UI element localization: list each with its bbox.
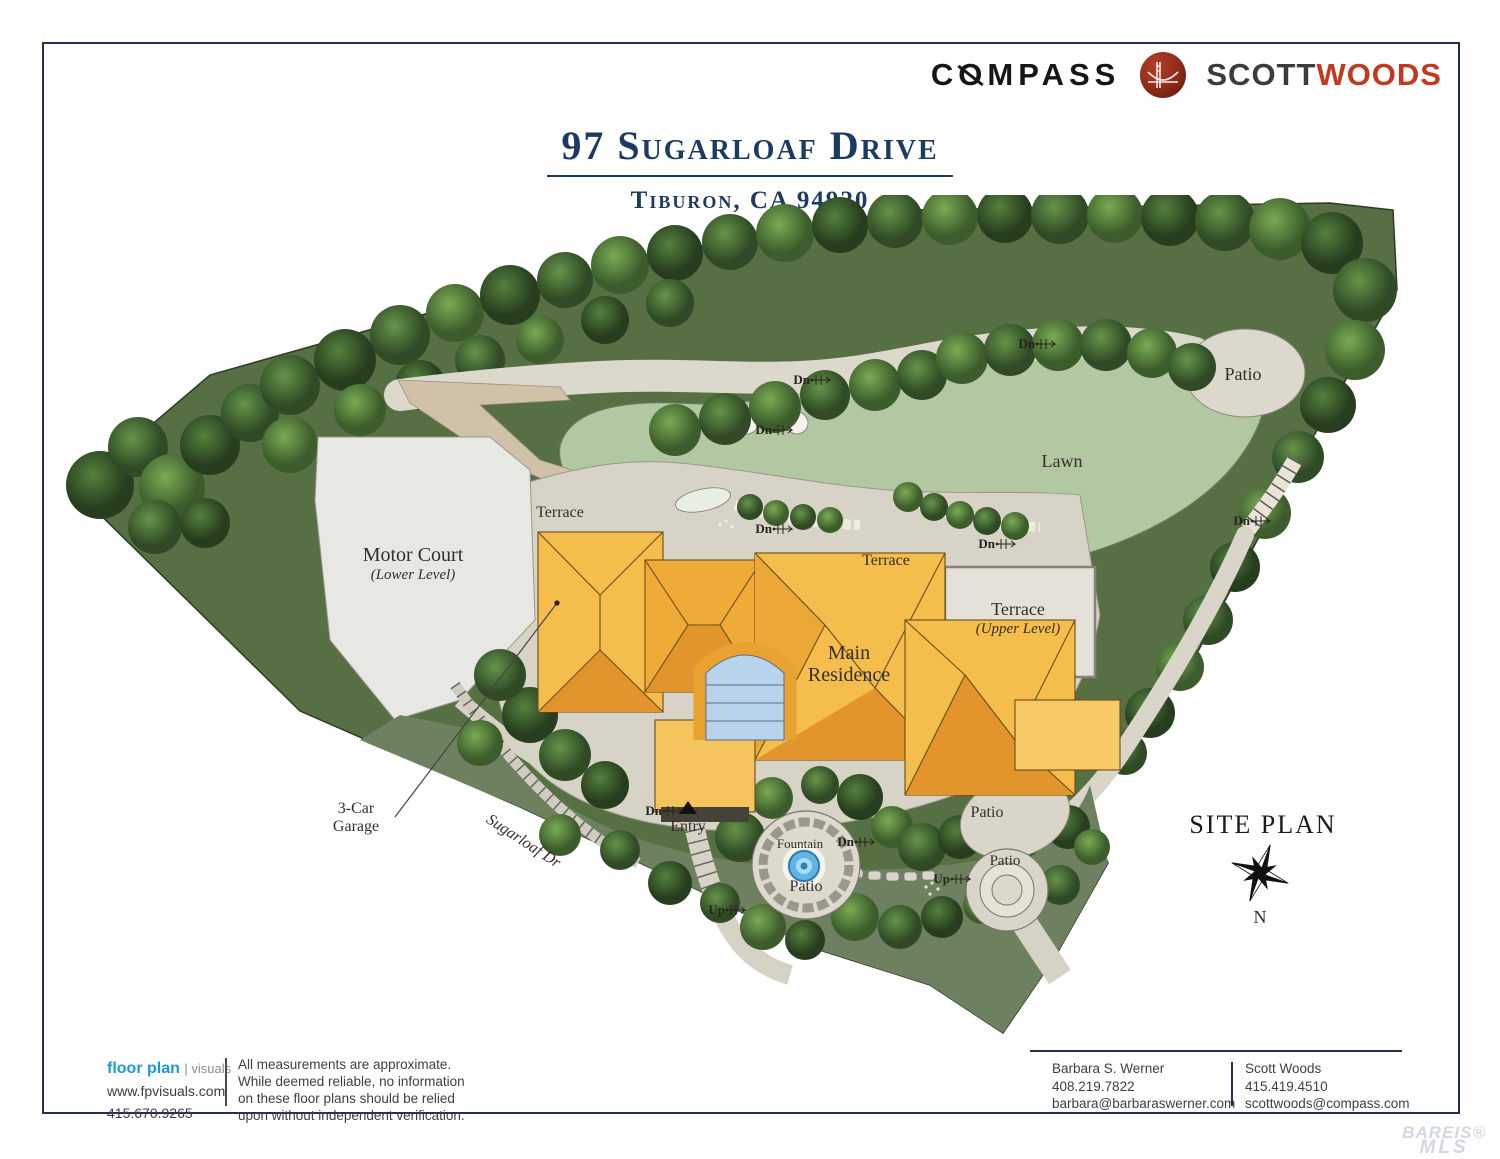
label-patio-lower: Patio — [990, 853, 1021, 869]
vendor-phone: 415.670.9265 — [107, 1102, 231, 1124]
fountain-patio — [752, 811, 860, 919]
watermark-reg: ® — [1472, 1123, 1486, 1142]
vendor-name-bold: floor plan — [107, 1060, 180, 1077]
label-motor-court: Motor Court — [363, 544, 464, 566]
label-terrace-left: Terrace — [536, 504, 584, 521]
label-terrace-upper: Terrace — [991, 599, 1045, 619]
scott-text: SCOTT — [1206, 57, 1316, 92]
compass-logo-text-rest: MPASS — [987, 57, 1120, 93]
stair-marker-label: Up — [933, 871, 950, 886]
stair-marker-label: Dn — [837, 834, 854, 849]
stair-marker-label: Up — [708, 902, 725, 917]
label-main-residence-1: Main — [828, 642, 870, 664]
vendor-website[interactable]: www.fpvisuals.com — [107, 1080, 231, 1102]
brand-logos: COMPASS SCOTTWOODS — [931, 52, 1442, 98]
disclaimer: All measurements are approximate.While d… — [238, 1056, 465, 1124]
label-fountain: Fountain — [777, 836, 824, 851]
stair-marker-label: Dn — [978, 536, 995, 551]
site-plan: Patio Lawn Terrace Terrace Terrace (Uppe… — [60, 195, 1405, 1050]
scottwoods-logo: SCOTTWOODS — [1206, 57, 1442, 93]
compass-slashed-o-icon: O — [958, 57, 987, 93]
watermark-line2: MLS — [1402, 1140, 1486, 1155]
label-site-plan: SITE PLAN — [1189, 810, 1336, 839]
label-garage-2: Garage — [333, 818, 379, 835]
contact-name: Barbara S. Werner — [1052, 1060, 1235, 1078]
bareis-mls-watermark: BAREIS® MLS — [1402, 1125, 1486, 1155]
label-north: N — [1254, 907, 1267, 927]
label-fountain-patio: Patio — [790, 878, 823, 895]
compass-rose-icon — [1222, 835, 1299, 912]
contact-barbara: Barbara S. Werner 408.219.7822 barbara@b… — [1052, 1060, 1235, 1113]
stair-marker-label: Dn — [1018, 336, 1035, 351]
contact-phone: 408.219.7822 — [1052, 1078, 1235, 1096]
label-motor-court-sub: (Lower Level) — [371, 567, 456, 583]
golden-gate-bridge-icon — [1140, 52, 1186, 98]
label-terrace-center: Terrace — [862, 552, 910, 569]
vendor-block: floor plan | visuals www.fpvisuals.com 4… — [107, 1058, 231, 1124]
label-terrace-upper-sub: (Upper Level) — [976, 621, 1061, 637]
contact-email[interactable]: scottwoods@compass.com — [1245, 1095, 1410, 1113]
contact-email[interactable]: barbara@barbaraswerner.com — [1052, 1095, 1235, 1113]
woods-text: WOODS — [1316, 57, 1442, 92]
label-patio-mid: Patio — [971, 804, 1004, 821]
label-patio-top: Patio — [1224, 364, 1261, 384]
stair-marker-label: Dn — [645, 803, 662, 818]
contact-name: Scott Woods — [1245, 1060, 1410, 1078]
stair-marker-label: Dn — [755, 521, 772, 536]
stair-marker-label: Dn — [793, 372, 810, 387]
footer-divider-left — [225, 1058, 227, 1106]
stair-marker-label: Dn — [1233, 513, 1250, 528]
label-main-residence-2: Residence — [808, 664, 890, 686]
contact-phone: 415.419.4510 — [1245, 1078, 1410, 1096]
vendor-logo: floor plan | visuals — [107, 1058, 231, 1080]
contact-scott: Scott Woods 415.419.4510 scottwoods@comp… — [1245, 1060, 1410, 1113]
label-entry: Entry — [670, 818, 706, 835]
stair-marker-label: Dn — [755, 422, 772, 437]
compass-logo-text: C — [931, 57, 958, 93]
contacts-divider — [1231, 1062, 1233, 1106]
label-garage-1: 3-Car — [338, 800, 375, 817]
page-title: 97 Sugarloaf Drive — [547, 122, 952, 177]
compass-logo: COMPASS — [931, 57, 1120, 93]
label-lawn: Lawn — [1042, 451, 1083, 471]
contacts-rule — [1030, 1050, 1402, 1052]
